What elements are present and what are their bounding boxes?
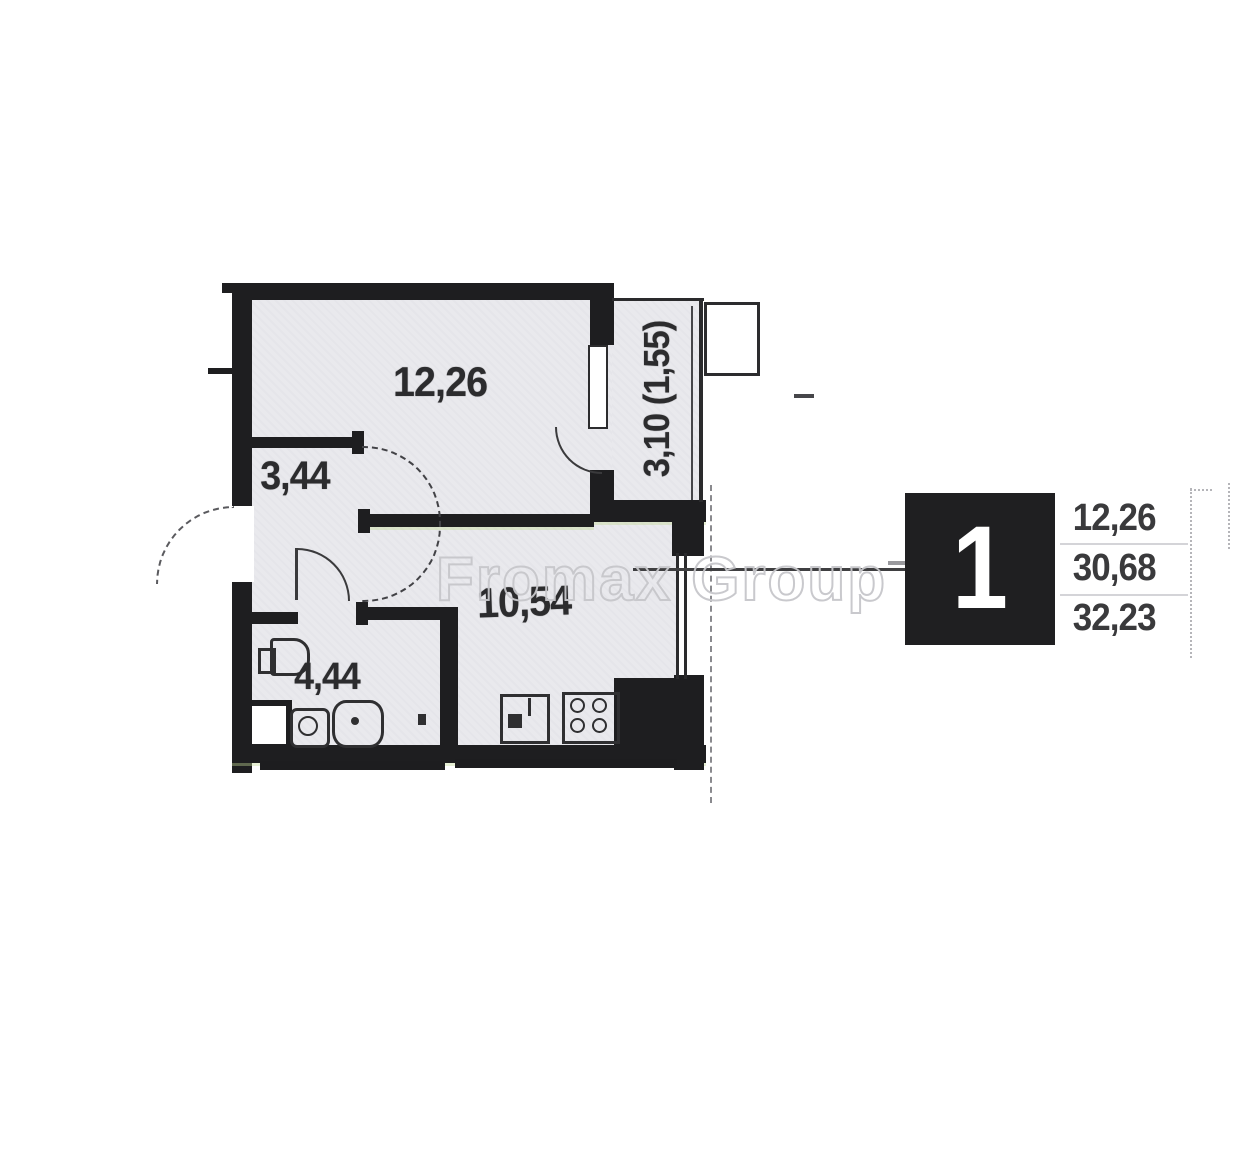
wall-balcony-separator-top bbox=[590, 283, 614, 345]
watermark-text: Fromax Group bbox=[436, 544, 887, 615]
stove-burner bbox=[570, 718, 585, 733]
wall-cap bbox=[356, 602, 368, 625]
room-area-living: 12,26 bbox=[393, 358, 487, 406]
legend-dotted-border-top bbox=[1190, 489, 1212, 491]
page-margin-dots bbox=[1228, 483, 1230, 549]
toilet-icon bbox=[332, 700, 384, 748]
dimension-line-vertical bbox=[710, 485, 712, 803]
washbasin-drain-icon bbox=[298, 716, 318, 736]
legend-living-total-area: 30,68 bbox=[1058, 543, 1181, 593]
wall-bathroom-top-left bbox=[250, 612, 298, 624]
toilet-center-dot bbox=[351, 717, 359, 725]
wall-kitchen-right-corner bbox=[674, 675, 704, 770]
legend-areas-column: 12,26 30,68 32,23 bbox=[1058, 493, 1192, 645]
wall-segment-top bbox=[232, 283, 614, 300]
balcony-glazing-right-inner bbox=[691, 306, 693, 500]
balcony-glazing-top bbox=[612, 298, 704, 301]
kitchen-sink-faucet bbox=[528, 698, 531, 716]
balcony-door-leaf bbox=[588, 345, 608, 429]
entry-door-arc bbox=[156, 506, 234, 584]
adjacent-unit-fragment bbox=[455, 759, 677, 768]
room-area-balcony: 3,10 (1,55) bbox=[636, 303, 678, 495]
stove-burner bbox=[592, 718, 607, 733]
balcony-glazing-right-outer bbox=[699, 298, 703, 502]
wall-tick-left bbox=[208, 368, 234, 374]
kitchen-sink-basin bbox=[508, 714, 522, 728]
shaft-inner bbox=[252, 706, 286, 744]
room-area-hallway: 3,44 bbox=[260, 454, 329, 499]
leader-tick bbox=[888, 561, 905, 565]
stove-burner bbox=[570, 698, 585, 713]
legend-room-count-box: 1 bbox=[905, 493, 1055, 645]
door-stop-dot bbox=[418, 714, 426, 725]
neighbor-wall-tick bbox=[794, 394, 814, 398]
legend-room-count: 1 bbox=[916, 493, 1044, 643]
legend-dotted-border-right bbox=[1190, 488, 1192, 658]
wall-balcony-foot bbox=[614, 678, 676, 760]
wall-living-hall-divider bbox=[244, 437, 362, 448]
floor-plan-page: 12,26 3,44 10,54 4,44 3,10 (1,55) Fromax… bbox=[0, 0, 1244, 1150]
legend-living-area: 12,26 bbox=[1058, 493, 1181, 543]
adjacent-unit-fragment bbox=[260, 761, 445, 770]
ac-unit-box bbox=[704, 302, 760, 376]
wall-bathroom-right bbox=[440, 607, 458, 748]
stove-burner bbox=[592, 698, 607, 713]
legend-total-area: 32,23 bbox=[1058, 593, 1181, 643]
room-area-bathroom: 4,44 bbox=[294, 656, 360, 699]
